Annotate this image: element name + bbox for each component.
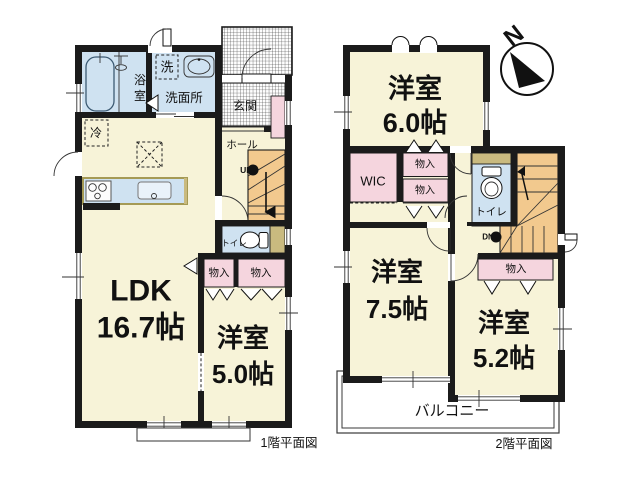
floor1-caption: 1階平面図 <box>261 435 318 450</box>
hall-label: ホール <box>226 139 258 151</box>
bedroom5-name-label: 洋室 <box>217 323 269 353</box>
ldk-size-label: 16.7帖 <box>97 312 185 345</box>
floor1-plan: 浴 室 洗 洗面所 玄関 ホール <box>54 27 317 450</box>
bedroom6-name-label: 洋室 <box>388 73 442 104</box>
bath-label-top: 浴 <box>134 73 146 87</box>
toilet-icon-2f <box>481 167 502 199</box>
entrance-porch <box>222 27 292 75</box>
stairs-up-dot <box>248 165 259 176</box>
storage-middle-label: 物入 <box>415 184 435 197</box>
bedroom52-size-label: 5.2帖 <box>473 343 535 373</box>
window <box>420 37 437 54</box>
bath-label-bottom: 室 <box>134 88 146 103</box>
terrace-step <box>137 428 250 441</box>
balcony-label: バルコニー <box>415 403 490 420</box>
storage-left-label: 物入 <box>209 266 230 279</box>
bedroom75-name-label: 洋室 <box>371 257 423 287</box>
storage-top-label: 物入 <box>415 158 435 171</box>
bedroom75-size-label: 7.5帖 <box>366 294 428 324</box>
washroom-label: 洗面所 <box>165 91 203 105</box>
stairs-1f <box>248 150 285 222</box>
storage-lower-label: 物入 <box>506 262 527 275</box>
bedroom6-size-label: 6.0帖 <box>383 108 448 138</box>
stairs-down-dot <box>491 232 502 243</box>
window <box>392 37 409 54</box>
bedroom5-size-label: 5.0帖 <box>212 359 274 389</box>
floor2-caption: 2階平面図 <box>496 436 553 451</box>
laundry-label: 洗 <box>160 60 173 75</box>
storage-right-label: 物入 <box>251 266 272 279</box>
stove-icon <box>86 181 111 201</box>
kitchen-counter <box>83 178 187 204</box>
sliding-door <box>156 112 194 118</box>
sliding-door-ldk-bedroom <box>198 353 204 391</box>
window <box>285 101 292 125</box>
kitchen-sink-icon <box>138 182 171 199</box>
floor-plan-drawing: 浴 室 洗 洗面所 玄関 ホール <box>0 0 636 480</box>
bathtub-icon <box>86 53 114 111</box>
wic-label: WIC <box>360 174 385 189</box>
entrance-label: 玄関 <box>233 98 257 113</box>
floor-plan-page: 浴 室 洗 洗面所 玄関 ホール <box>0 0 636 480</box>
toilet-label-1f: トイレ <box>221 238 247 248</box>
toilet-label-2f: トイレ <box>475 206 507 218</box>
window <box>285 229 292 245</box>
bedroom52-name-label: 洋室 <box>478 308 530 338</box>
window <box>483 102 490 130</box>
shoe-cabinet <box>271 96 285 138</box>
ldk-name-label: LDK <box>110 275 172 308</box>
fridge-label: 冷 <box>90 126 102 140</box>
